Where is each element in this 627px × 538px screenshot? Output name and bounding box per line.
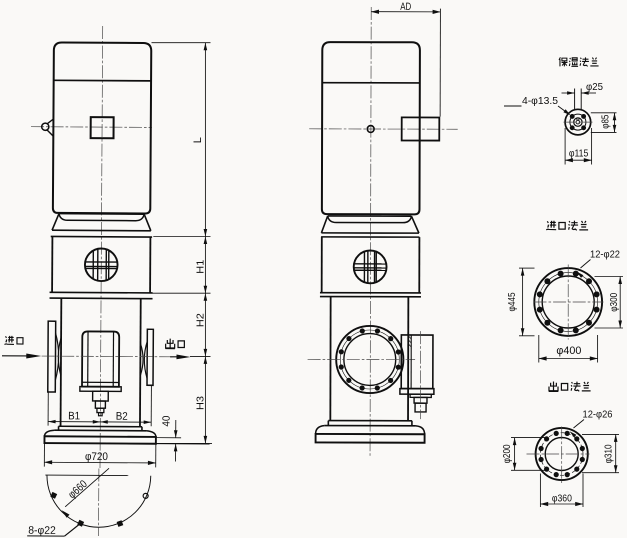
svg-text:12-φ26: 12-φ26	[583, 408, 613, 420]
svg-text:12-φ22: 12-φ22	[590, 249, 620, 261]
svg-text:φ310: φ310	[603, 444, 615, 463]
svg-text:40: 40	[161, 415, 173, 426]
svg-text:H2: H2	[196, 313, 207, 327]
svg-text:φ200: φ200	[501, 444, 513, 463]
svg-text:φ400: φ400	[556, 345, 581, 357]
svg-text:φ720: φ720	[85, 451, 108, 463]
svg-text:φ445: φ445	[506, 292, 518, 311]
svg-text:H1: H1	[196, 259, 207, 273]
svg-text:H3: H3	[196, 396, 207, 410]
svg-text:B1: B1	[68, 410, 80, 422]
svg-text:φ360: φ360	[552, 493, 572, 505]
svg-text:4-φ13.5: 4-φ13.5	[522, 95, 558, 107]
svg-text:φ25: φ25	[586, 81, 603, 93]
svg-text:8-φ22: 8-φ22	[28, 525, 56, 537]
svg-text:φ300: φ300	[608, 293, 620, 312]
svg-text:φ85: φ85	[599, 115, 611, 129]
svg-text:L: L	[192, 137, 204, 143]
svg-text:φ115: φ115	[569, 147, 589, 159]
svg-text:AD: AD	[400, 1, 411, 13]
svg-text:B2: B2	[116, 411, 128, 423]
